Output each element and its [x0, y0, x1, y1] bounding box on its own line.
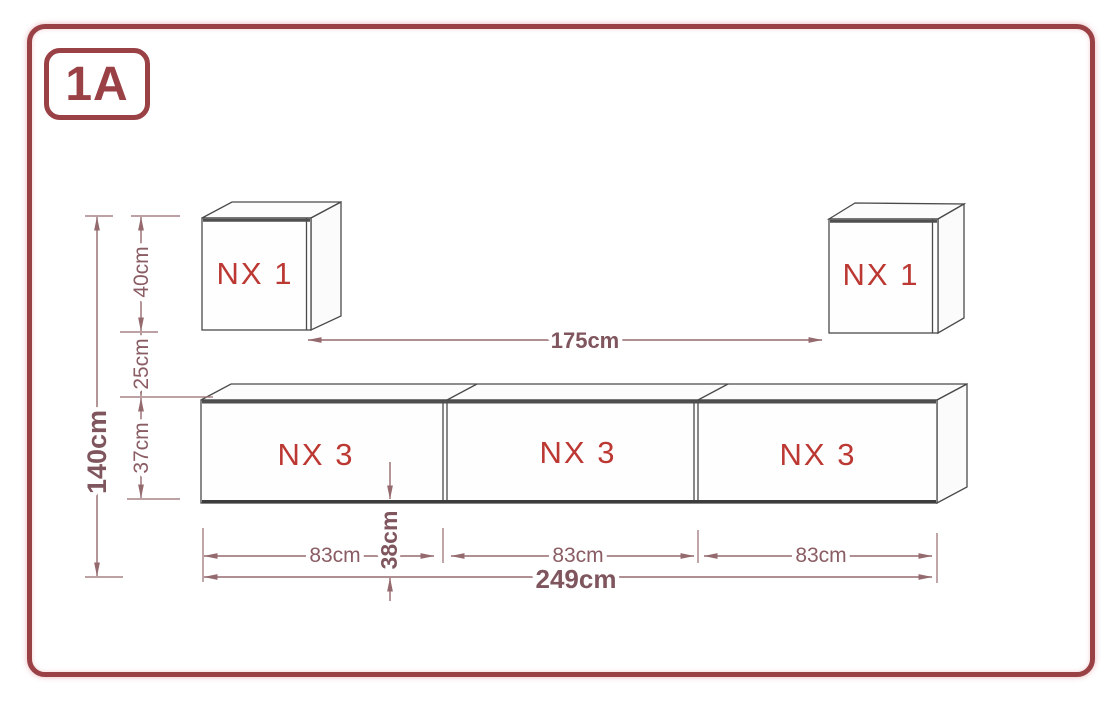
dim-gap-label: 25cm	[130, 338, 153, 389]
dim-width3-label: 83cm	[795, 544, 846, 567]
cabinet-label: NX 1	[217, 256, 294, 291]
dim-cabinet-height-label: 37cm	[130, 422, 153, 473]
cube-right-side-face	[938, 204, 964, 333]
wall-cube-right: NX 1	[829, 203, 964, 333]
furniture-diagram: NX 1 NX 1 NX 3 NX 3 NX 3	[0, 0, 1119, 705]
diagram-stage: 1A NX 1 NX 1	[0, 0, 1119, 705]
cabinet-label: NX 3	[540, 435, 617, 470]
cabinet-label: NX 3	[780, 437, 857, 472]
tv-row-top-face	[201, 384, 967, 400]
dim-offset-label: 38cm	[376, 511, 402, 570]
dim-cube-height-label: 40cm	[130, 246, 153, 297]
dim-span-label: 175cm	[551, 328, 620, 353]
wall-cube-left: NX 1	[202, 202, 341, 330]
tv-row-side-face	[937, 384, 967, 503]
tv-cabinet-row: NX 3 NX 3 NX 3	[201, 384, 967, 503]
cabinet-label: NX 1	[843, 257, 920, 292]
cabinet-label: NX 3	[278, 437, 355, 472]
dim-width1-label: 83cm	[309, 544, 360, 567]
dim-total-height-label: 140cm	[82, 410, 112, 494]
cube-left-side-face	[311, 202, 341, 330]
dim-total-width-label: 249cm	[536, 564, 617, 594]
